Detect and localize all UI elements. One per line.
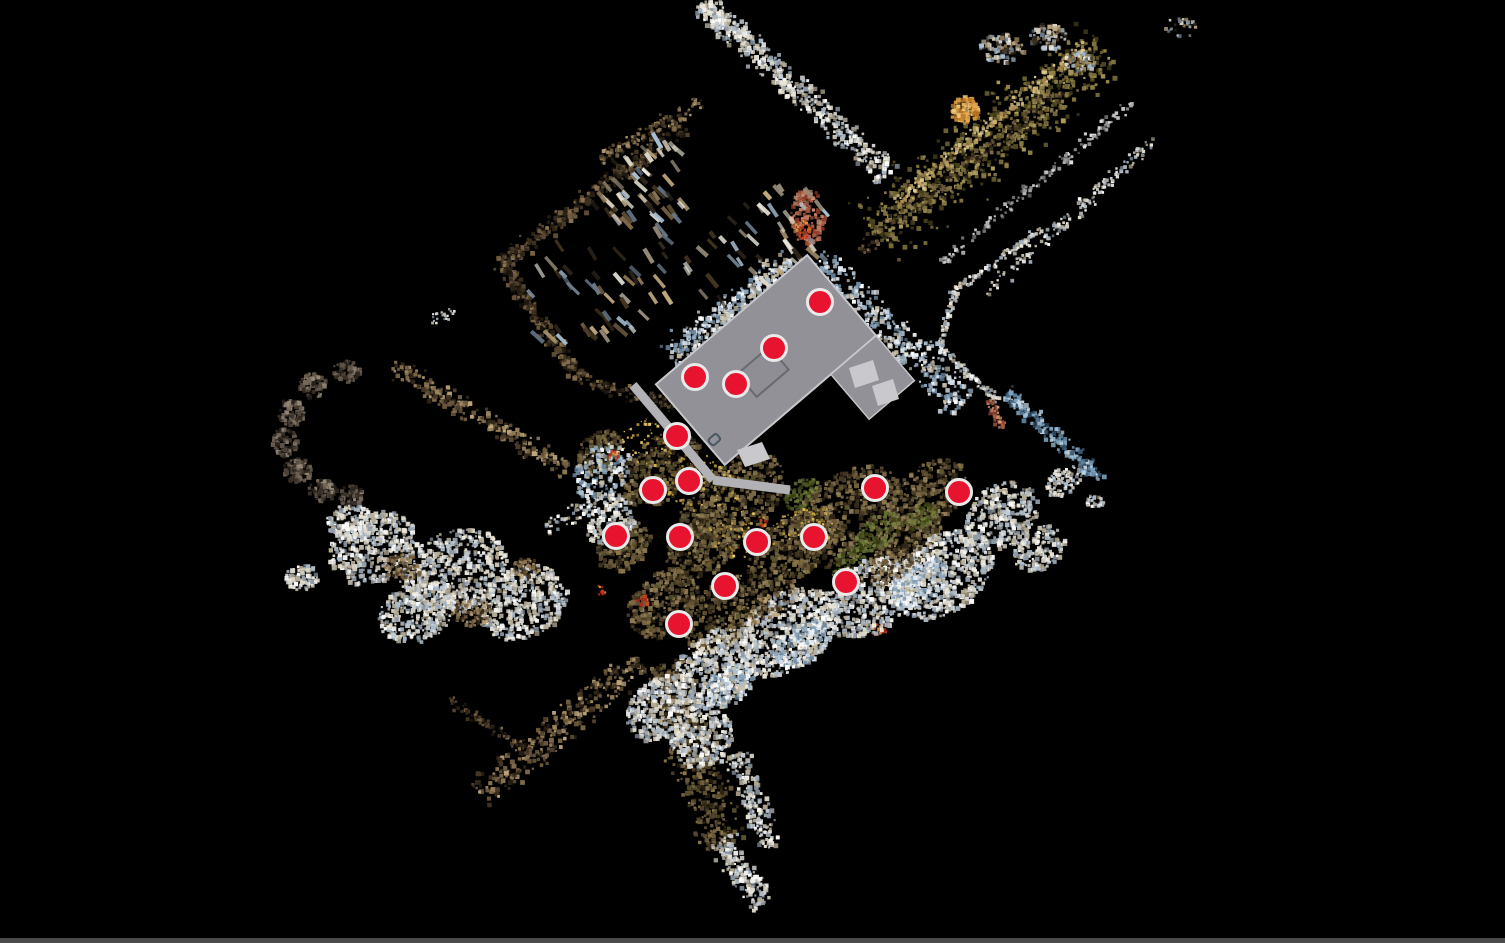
scan-position-marker[interactable]: [675, 467, 703, 495]
scan-position-marker[interactable]: [800, 523, 828, 551]
scan-position-marker[interactable]: [602, 522, 630, 550]
scan-position-marker[interactable]: [665, 610, 693, 638]
scan-position-marker[interactable]: [663, 422, 691, 450]
scan-position-marker[interactable]: [639, 476, 667, 504]
scan-position-marker[interactable]: [832, 568, 860, 596]
scan-position-marker[interactable]: [722, 370, 750, 398]
scan-position-marker[interactable]: [743, 528, 771, 556]
scan-markers-layer: [0, 0, 1505, 943]
scan-position-marker[interactable]: [711, 572, 739, 600]
scan-position-marker[interactable]: [760, 334, 788, 362]
pointcloud-viewport[interactable]: [0, 0, 1505, 943]
scan-position-marker[interactable]: [945, 478, 973, 506]
scan-position-marker[interactable]: [861, 474, 889, 502]
scan-position-marker[interactable]: [666, 523, 694, 551]
window-bottom-edge: [0, 938, 1505, 943]
scan-position-marker[interactable]: [681, 363, 709, 391]
scan-position-marker[interactable]: [806, 288, 834, 316]
